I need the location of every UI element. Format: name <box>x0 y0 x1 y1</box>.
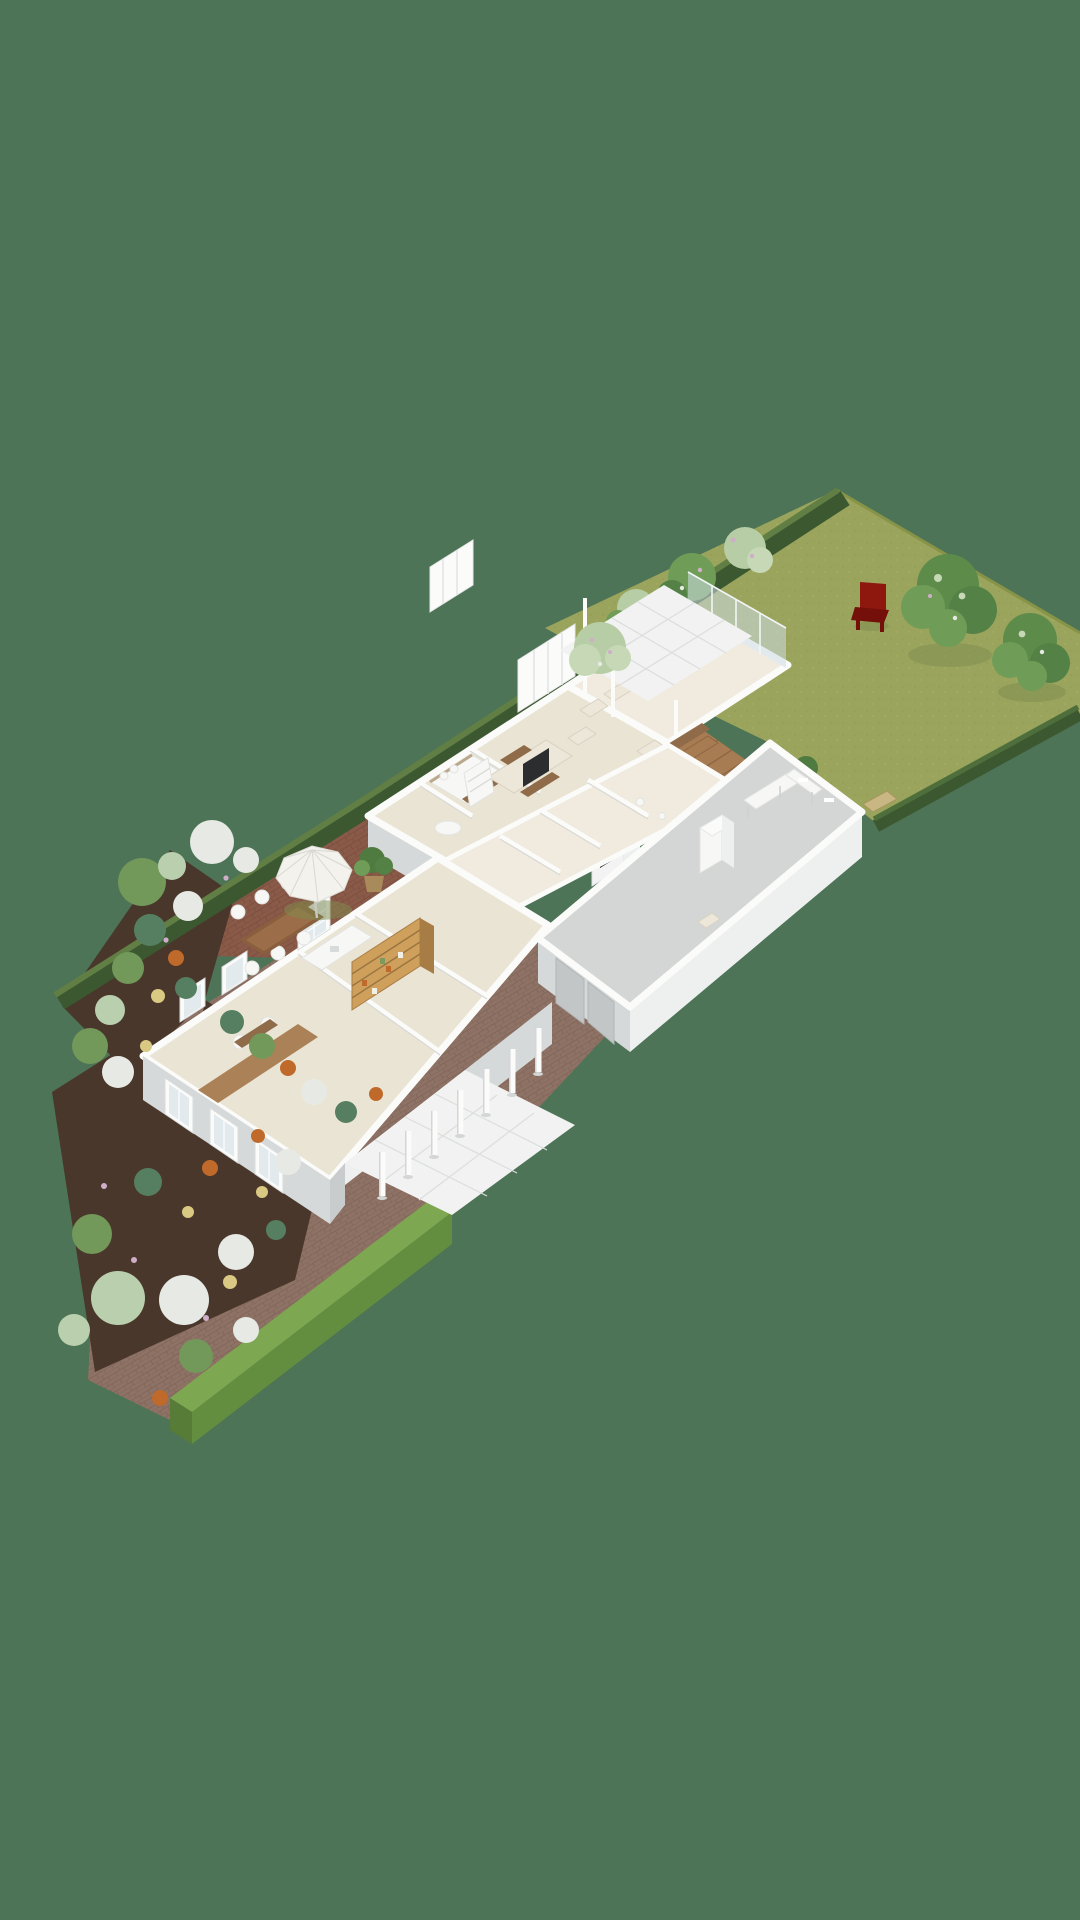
pillar <box>381 1152 386 1196</box>
pillar <box>511 1049 516 1093</box>
parasol <box>276 846 352 920</box>
pillar <box>485 1069 490 1113</box>
pillar <box>459 1090 464 1134</box>
wall-vent <box>824 798 834 802</box>
toilet <box>659 813 666 820</box>
pillar <box>433 1111 438 1155</box>
pillar <box>537 1028 542 1072</box>
bathtub <box>435 821 461 835</box>
isometric-site-plan-canvas[interactable] <box>0 0 1080 1920</box>
wall-vent <box>798 778 808 782</box>
pillar <box>407 1131 412 1175</box>
sink <box>330 946 339 952</box>
basin <box>636 798 644 806</box>
floor-plan-stage <box>0 0 1080 1920</box>
